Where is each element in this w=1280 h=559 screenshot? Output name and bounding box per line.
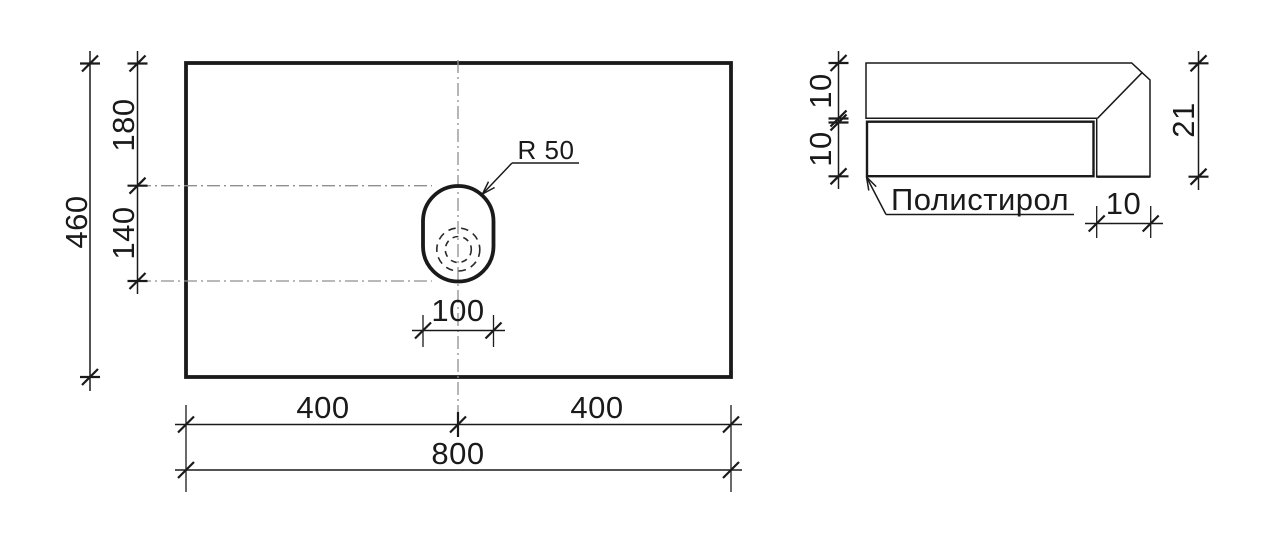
polystyrene-layer: [867, 122, 1094, 177]
material-label: Полистирол: [891, 182, 1069, 217]
dim-section-layers: 10 10: [803, 51, 849, 189]
leader-arrowhead: [867, 177, 877, 191]
drawing-canvas: R 50 460 180 140: [0, 0, 1280, 559]
plan-view: R 50 460 180 140: [59, 51, 742, 492]
hole-width-label: 100: [431, 293, 484, 328]
width-right-label: 400: [570, 390, 623, 425]
thickness-total-label: 21: [1166, 102, 1201, 137]
material-leader: Полистирол: [867, 177, 1075, 217]
edge-width-label: 10: [1106, 186, 1141, 221]
layer-bottom-label: 10: [803, 131, 838, 166]
radius-label: R 50: [518, 135, 575, 165]
dim-edge-width: 10: [1085, 186, 1163, 238]
dim-height-total: 460: [59, 51, 100, 391]
offset-top-label: 180: [106, 98, 141, 151]
radius-leader: R 50: [483, 135, 580, 194]
worktop-hatched-section: [866, 63, 1150, 177]
width-total-label: 800: [431, 436, 484, 471]
technical-drawing: R 50 460 180 140: [0, 0, 1280, 559]
width-left-label: 400: [296, 390, 349, 425]
dim-offsets: 180 140: [106, 51, 148, 294]
section-view: 10 10 21 10 Пол: [803, 51, 1209, 238]
height-total-label: 460: [59, 195, 94, 248]
miter-joint-line: [1098, 72, 1143, 118]
hole-height-label: 140: [106, 206, 141, 259]
dim-section-total: 21: [1166, 51, 1209, 190]
leader-line: [483, 163, 513, 194]
layer-top-label: 10: [803, 73, 838, 108]
leader-line: [867, 177, 887, 215]
